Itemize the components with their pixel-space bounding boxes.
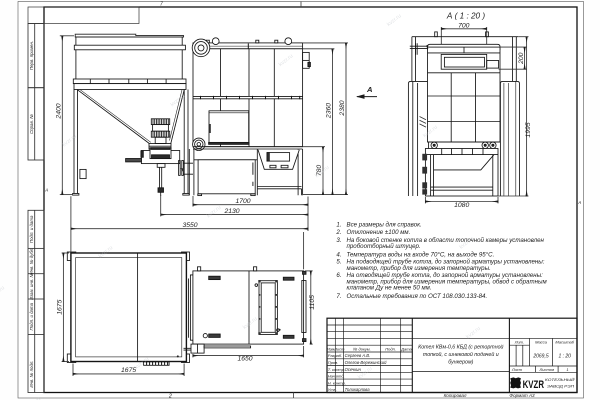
svg-text:Инв. № подл.: Инв. № подл. (29, 360, 34, 387)
svg-text:Дата: Дата (400, 346, 412, 351)
svg-text:5.: 5. (336, 259, 341, 266)
svg-text:Копировал: Копировал (444, 393, 467, 398)
svg-text:2: 2 (168, 393, 172, 399)
svg-text:А: А (44, 188, 48, 193)
svg-text:2.: 2. (335, 229, 341, 236)
svg-text:Разраб.: Разраб. (328, 353, 342, 358)
svg-text:1.: 1. (336, 222, 341, 229)
svg-text:№ докум.: № докум. (353, 346, 371, 351)
svg-text:2360: 2360 (326, 103, 333, 119)
svg-text:бункером): бункером) (448, 360, 473, 366)
svg-text:1700: 1700 (235, 198, 250, 205)
svg-text:7.: 7. (336, 293, 341, 300)
svg-text:1995: 1995 (525, 122, 532, 137)
svg-text:3.: 3. (336, 237, 341, 244)
svg-text:6.: 6. (336, 272, 341, 279)
svg-text:Подп. и дата: Подп. и дата (29, 215, 34, 243)
svg-text:пробоотборный штуцер.: пробоотборный штуцер. (347, 243, 421, 250)
svg-text:Пров.: Пров. (328, 360, 339, 365)
svg-text:ЗАВОД РЭП: ЗАВОД РЭП (547, 383, 574, 388)
svg-text:Н. контр.: Н. контр. (328, 380, 346, 385)
svg-text:Осечкин: Осечкин (345, 367, 362, 372)
svg-text:Лист: Лист (333, 346, 345, 351)
svg-text:Масса: Масса (535, 340, 548, 345)
svg-text:Подп.: Подп. (385, 346, 396, 351)
svg-text:4.: 4. (336, 251, 341, 258)
svg-text:1675: 1675 (57, 299, 64, 314)
svg-text:3550: 3550 (182, 222, 197, 229)
svg-text:700: 700 (458, 22, 470, 29)
svg-text:Все размеры для справок.: Все размеры для справок. (347, 222, 422, 229)
svg-text:Лит.: Лит. (514, 340, 524, 345)
svg-text:топкой, с шнековой подачей и: топкой, с шнековой подачей и (423, 351, 499, 358)
svg-text:Остальные требования по ОСТ 10: Остальные требования по ОСТ 108.030.133-… (347, 293, 488, 300)
svg-text:Инв. № дубл.: Инв. № дубл. (29, 247, 34, 274)
svg-text:Сергеев А.В.: Сергеев А.В. (345, 353, 371, 358)
svg-text:А ( 1 : 20 ): А ( 1 : 20 ) (446, 12, 485, 21)
svg-text:Т. контр.: Т. контр. (328, 367, 345, 372)
svg-text:А: А (577, 200, 581, 205)
svg-text:КОТЕЛЬНЫЙ: КОТЕЛЬНЫЙ (545, 377, 575, 382)
svg-text:1: 1 (566, 367, 568, 372)
svg-text:7: 7 (160, 2, 163, 8)
svg-text:Листов: Листов (539, 367, 555, 372)
svg-text:Утв.: Утв. (328, 387, 337, 392)
svg-text:Подп. и дата: Подп. и дата (29, 302, 34, 330)
svg-text:Толикарлова: Толикарлова (345, 387, 371, 392)
svg-text:А: А (366, 85, 372, 94)
svg-text:манометр, прибор для измерения: манометр, прибор для измерения температу… (347, 265, 491, 272)
svg-text:Нач.отд.: Нач.отд. (328, 374, 345, 379)
svg-text:Котел КВм-0,6 КБД (с ретортной: Котел КВм-0,6 КБД (с ретортной (418, 344, 503, 351)
svg-text:Справ. №: Справ. № (29, 114, 34, 134)
svg-text:Лист: Лист (511, 367, 523, 372)
svg-text:2380: 2380 (339, 100, 346, 116)
svg-text:1 : 20: 1 : 20 (558, 354, 571, 360)
svg-text:1080: 1080 (454, 202, 469, 209)
svg-text:200: 200 (518, 52, 525, 65)
svg-text:Перв. примен.: Перв. примен. (29, 41, 34, 70)
svg-text:KVZR: KVZR (523, 379, 544, 391)
svg-text:2130: 2130 (223, 208, 239, 215)
svg-text:1105: 1105 (309, 295, 316, 310)
svg-text:1675: 1675 (121, 367, 136, 374)
svg-text:Взам. инв. №: Взам. инв. № (29, 272, 34, 299)
svg-text:Отклонение ±100 мм.: Отклонение ±100 мм. (347, 229, 411, 236)
svg-text:Температура воды на входе 70°С: Температура воды на входе 70°С, на выход… (347, 251, 495, 258)
svg-text:Масштаб: Масштаб (555, 340, 574, 345)
svg-text:1650: 1650 (237, 355, 252, 362)
svg-text:Формат А3: Формат А3 (509, 393, 535, 398)
svg-text:2400: 2400 (55, 103, 62, 119)
svg-text:Олегов-Вережинский: Олегов-Вережинский (345, 360, 387, 365)
svg-text:2069,5: 2069,5 (532, 354, 549, 360)
